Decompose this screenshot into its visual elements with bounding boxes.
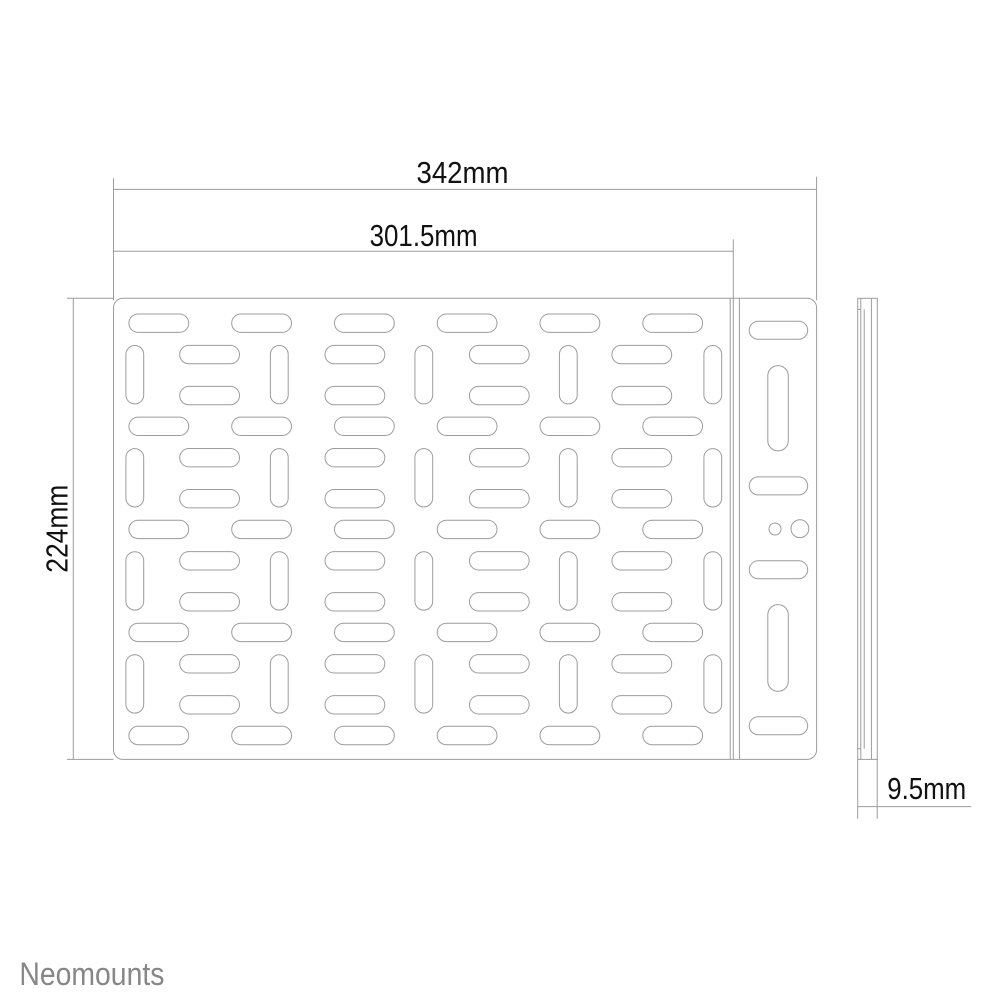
svg-text:224mm: 224mm bbox=[40, 485, 75, 573]
svg-text:342mm: 342mm bbox=[417, 155, 509, 190]
svg-text:9.5mm: 9.5mm bbox=[887, 771, 966, 806]
svg-text:301.5mm: 301.5mm bbox=[370, 218, 478, 253]
svg-text:Neomounts: Neomounts bbox=[19, 956, 164, 992]
